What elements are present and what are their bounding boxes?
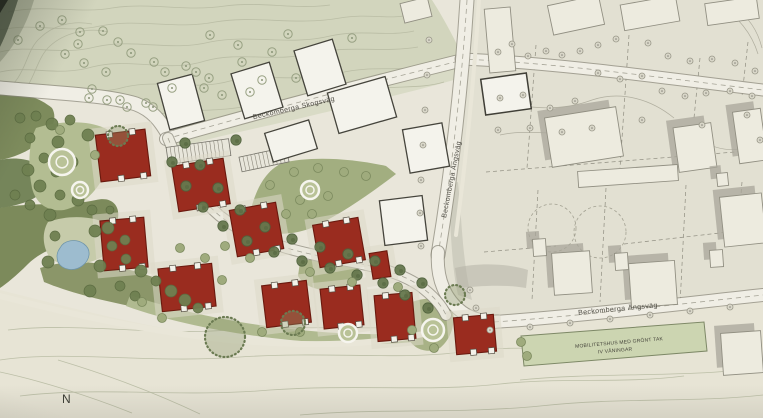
tree-trunk-dot <box>591 127 593 129</box>
park-tree-icon <box>94 260 106 272</box>
tree-trunk-dot <box>759 139 761 141</box>
building-footprint <box>545 107 624 168</box>
building-footprint <box>614 253 628 271</box>
site-plan-photo: Beckomberga Skogsväg Beckomberga Ängsväg… <box>0 0 763 418</box>
tree-trunk-dot <box>209 34 211 36</box>
tree-trunk-dot <box>579 50 581 52</box>
tree-trunk-dot <box>619 78 621 80</box>
street-tree-shade <box>235 139 239 143</box>
balcony-block <box>480 313 487 320</box>
park-tree-icon <box>84 285 96 297</box>
street-tree-shade <box>329 267 333 271</box>
courtyard-tree-icon <box>362 172 371 181</box>
tree-trunk-dot <box>561 54 563 56</box>
planned-white-building <box>265 120 318 162</box>
park-tree-icon <box>89 225 101 237</box>
building-footprint <box>402 123 449 173</box>
playground-ring <box>301 181 319 199</box>
park-tree-icon <box>55 190 65 200</box>
balcony-block <box>140 172 147 179</box>
tree-trunk-dot <box>61 19 63 21</box>
building-footprint <box>552 251 593 296</box>
tree-trunk-dot <box>185 65 187 67</box>
courtyard-tree-icon <box>176 244 185 253</box>
park-tree-icon <box>34 180 46 192</box>
park-tree-icon <box>25 200 35 210</box>
tree-trunk-dot <box>39 25 41 27</box>
tree-trunk-dot <box>475 307 477 309</box>
park-tree-icon <box>102 222 114 234</box>
balcony-block <box>343 217 350 224</box>
street-tree-shade <box>291 238 295 242</box>
tree-trunk-dot <box>422 144 424 146</box>
street-tree-shade <box>239 209 243 213</box>
street-tree-shade <box>421 282 425 286</box>
tree-trunk-dot <box>751 95 753 97</box>
street-tree-shade <box>222 225 226 229</box>
tree-trunk-dot <box>711 58 713 60</box>
courtyard-tree-icon <box>324 192 333 201</box>
balcony-block <box>194 262 201 269</box>
tree-trunk-dot <box>641 119 643 121</box>
building-footprint <box>532 239 546 257</box>
courtyard-tree-icon <box>348 278 357 287</box>
tree-trunk-dot <box>689 310 691 312</box>
courtyard-tree-icon <box>430 344 439 353</box>
playground-ring <box>72 182 88 198</box>
tree-trunk-dot <box>497 51 499 53</box>
park-tree-icon <box>106 206 114 214</box>
tree-trunk-dot <box>705 92 707 94</box>
courtyard-tree-icon <box>308 210 317 219</box>
tree-trunk-dot <box>88 97 90 99</box>
tree-trunk-dot <box>351 37 353 39</box>
street-tree-shade <box>427 307 431 311</box>
tree-trunk-dot <box>77 43 79 45</box>
balcony-block <box>356 256 363 263</box>
tree-trunk-dot <box>545 50 547 52</box>
tree-trunk-dot <box>569 322 571 324</box>
balcony-block <box>129 128 136 135</box>
red-building <box>374 290 416 343</box>
tree-trunk-dot <box>271 51 273 53</box>
park-tree-icon <box>50 231 60 241</box>
building-footprint <box>484 7 515 73</box>
tree-trunk-dot <box>574 100 576 102</box>
tree-trunk-dot <box>153 61 155 63</box>
park-tree-icon <box>121 254 131 264</box>
tree-trunk-dot <box>203 87 205 89</box>
tree-trunk-dot <box>497 129 499 131</box>
building-footprint <box>716 172 728 186</box>
building-footprint <box>379 196 427 246</box>
balcony-block <box>356 321 363 328</box>
tree-trunk-dot <box>64 53 66 55</box>
street-tree-shade <box>199 164 203 168</box>
tree-trunk-dot <box>287 33 289 35</box>
neighborhood-building <box>484 7 515 73</box>
playground-ring <box>339 324 357 342</box>
tree-trunk-dot <box>426 74 428 76</box>
neighborhood-building <box>713 185 763 248</box>
street-tree-shade <box>382 282 386 286</box>
park-tree-icon <box>165 285 177 297</box>
tree-trunk-dot <box>102 30 104 32</box>
street-tree-shade <box>374 260 378 264</box>
tree-trunk-dot <box>424 109 426 111</box>
street-tree-shade <box>202 206 206 210</box>
courtyard-tree-icon <box>258 328 267 337</box>
courtyard-tree-icon <box>282 210 291 219</box>
park-tree-icon <box>25 133 35 143</box>
large-tree-icon <box>281 311 305 335</box>
red-building <box>320 283 364 331</box>
site-plan-svg <box>0 0 763 418</box>
courtyard-tree-icon <box>246 254 255 263</box>
park-tree-icon <box>82 129 94 141</box>
tree-trunk-dot <box>597 44 599 46</box>
street-tree-shade <box>301 260 305 264</box>
large-tree-icon <box>205 317 245 357</box>
building-footprint <box>721 331 763 376</box>
park-tree-icon <box>31 111 41 121</box>
balcony-block <box>462 315 469 322</box>
courtyard-tree-icon <box>340 168 349 177</box>
tree-trunk-dot <box>195 71 197 73</box>
balcony-block <box>119 265 126 272</box>
park-tree-icon <box>120 235 130 245</box>
balcony-block <box>292 279 299 286</box>
balcony-block <box>206 158 213 165</box>
balcony-block <box>408 334 415 341</box>
park-tree-icon <box>115 281 125 291</box>
tree-trunk-dot <box>106 99 108 101</box>
balcony-block <box>118 175 125 182</box>
courtyard-tree-icon <box>523 352 532 361</box>
balcony-block <box>260 202 267 209</box>
building-footprint <box>720 193 763 247</box>
park-tree-icon <box>10 190 20 200</box>
courtyard-tree-icon <box>218 276 227 285</box>
courtyard-tree-icon <box>221 242 230 251</box>
shade-strip <box>455 264 528 288</box>
large-tree-icon <box>445 285 465 305</box>
street-tree-shade <box>264 226 268 230</box>
park-tree-icon <box>151 276 161 286</box>
building-footprint <box>673 123 717 173</box>
tree-trunk-dot <box>489 329 491 331</box>
courtyard-tree-icon <box>290 168 299 177</box>
balcony-block <box>271 282 278 289</box>
tree-trunk-dot <box>684 95 686 97</box>
tree-trunk-dot <box>522 94 524 96</box>
tree-trunk-dot <box>261 79 263 81</box>
balcony-block <box>322 221 329 228</box>
street-tree-shade <box>399 269 403 273</box>
balcony-block <box>219 200 226 207</box>
tree-trunk-dot <box>661 90 663 92</box>
large-tree-icon <box>108 126 128 146</box>
park-tree-icon <box>42 256 54 268</box>
street-tree-shade <box>273 251 277 255</box>
tree-trunk-dot <box>221 94 223 96</box>
balcony-block <box>205 303 212 310</box>
tree-trunk-dot <box>420 179 422 181</box>
tree-trunk-dot <box>208 77 210 79</box>
playground-ring <box>49 149 75 175</box>
tree-trunk-dot <box>734 62 736 64</box>
building-footprint <box>265 120 318 162</box>
courtyard-tree-icon <box>201 254 210 263</box>
balcony-block <box>183 162 190 169</box>
park-tree-icon <box>135 265 147 277</box>
red-building <box>453 312 496 356</box>
building-footprint <box>709 250 723 268</box>
planned-white-building <box>379 196 427 246</box>
balcony-block <box>382 292 389 299</box>
tree-trunk-dot <box>91 88 93 90</box>
tree-trunk-dot <box>701 124 703 126</box>
tree-trunk-dot <box>164 71 166 73</box>
tree-trunk-dot <box>729 90 731 92</box>
street-tree-shade <box>246 240 250 244</box>
courtyard-tree-icon <box>314 164 323 173</box>
tree-trunk-dot <box>249 91 251 93</box>
street-tree-shade <box>217 187 221 191</box>
park-tree-icon <box>52 136 64 148</box>
balcony-block <box>130 216 137 223</box>
courtyard-tree-icon <box>306 268 315 277</box>
tree-trunk-dot <box>130 52 132 54</box>
tree-trunk-dot <box>641 75 643 77</box>
tree-trunk-dot <box>529 326 531 328</box>
tree-trunk-dot <box>83 62 85 64</box>
tree-trunk-dot <box>746 114 748 116</box>
tree-trunk-dot <box>152 106 154 108</box>
park-tree-icon <box>87 205 97 215</box>
balcony-block <box>335 260 342 267</box>
balcony-block <box>470 349 477 356</box>
street-tree-shade <box>184 142 188 146</box>
park-tree-icon <box>65 115 75 125</box>
tree-trunk-dot <box>241 61 243 63</box>
balcony-block <box>329 286 336 293</box>
tree-trunk-dot <box>237 44 239 46</box>
balcony-block <box>170 265 177 272</box>
park-tree-icon <box>44 209 56 221</box>
tree-trunk-dot <box>649 314 651 316</box>
tree-trunk-dot <box>105 71 107 73</box>
street-tree-shade <box>319 246 323 250</box>
tree-trunk-dot <box>549 107 551 109</box>
courtyard-tree-icon <box>138 298 147 307</box>
tree-trunk-dot <box>667 55 669 57</box>
tree-trunk-dot <box>79 31 81 33</box>
tree-trunk-dot <box>171 87 173 89</box>
tree-trunk-dot <box>117 41 119 43</box>
courtyard-tree-icon <box>56 126 65 135</box>
building-footprint <box>629 260 678 307</box>
park-tree-icon <box>39 153 49 163</box>
park-tree-icon <box>179 294 191 306</box>
north-indicator-label: N <box>62 392 71 406</box>
tree-trunk-dot <box>145 102 147 104</box>
park-tree-icon <box>22 164 34 176</box>
tree-trunk-dot <box>420 245 422 247</box>
balcony-block <box>488 347 495 354</box>
tree-trunk-dot <box>615 38 617 40</box>
courtyard-tree-icon <box>408 326 417 335</box>
street-tree-shade <box>185 185 189 189</box>
tree-trunk-dot <box>511 43 513 45</box>
courtyard-tree-icon <box>394 283 403 292</box>
tree-trunk-dot <box>561 131 563 133</box>
street-tree-shade <box>171 161 175 165</box>
courtyard-tree-icon <box>266 181 275 190</box>
tree-trunk-dot <box>647 42 649 44</box>
tree-trunk-dot <box>499 97 501 99</box>
courtyard-tree-icon <box>158 314 167 323</box>
tree-trunk-dot <box>597 72 599 74</box>
tree-trunk-dot <box>126 106 128 108</box>
park-tree-icon <box>193 303 203 313</box>
playground-ring <box>422 319 444 341</box>
tree-trunk-dot <box>527 55 529 57</box>
courtyard-tree-icon <box>91 151 100 160</box>
street-tree-shade <box>347 253 351 257</box>
tree-trunk-dot <box>609 318 611 320</box>
tree-trunk-dot <box>689 60 691 62</box>
street-tree-shade <box>404 294 408 298</box>
park-tree-icon <box>107 241 117 251</box>
tree-trunk-dot <box>754 70 756 72</box>
tree-trunk-dot <box>295 77 297 79</box>
courtyard-tree-icon <box>517 338 526 347</box>
balcony-block <box>253 249 260 256</box>
park-tree-icon <box>15 113 25 123</box>
tree-trunk-dot <box>428 39 430 41</box>
tree-trunk-dot <box>529 127 531 129</box>
street-tree-shade <box>356 274 360 278</box>
balcony-block <box>391 336 398 343</box>
tree-trunk-dot <box>729 306 731 308</box>
tree-trunk-dot <box>17 39 19 41</box>
tree-trunk-dot <box>469 289 471 291</box>
planned-white-building <box>402 123 449 173</box>
tree-trunk-dot <box>119 99 121 101</box>
tree-trunk-dot <box>419 212 421 214</box>
